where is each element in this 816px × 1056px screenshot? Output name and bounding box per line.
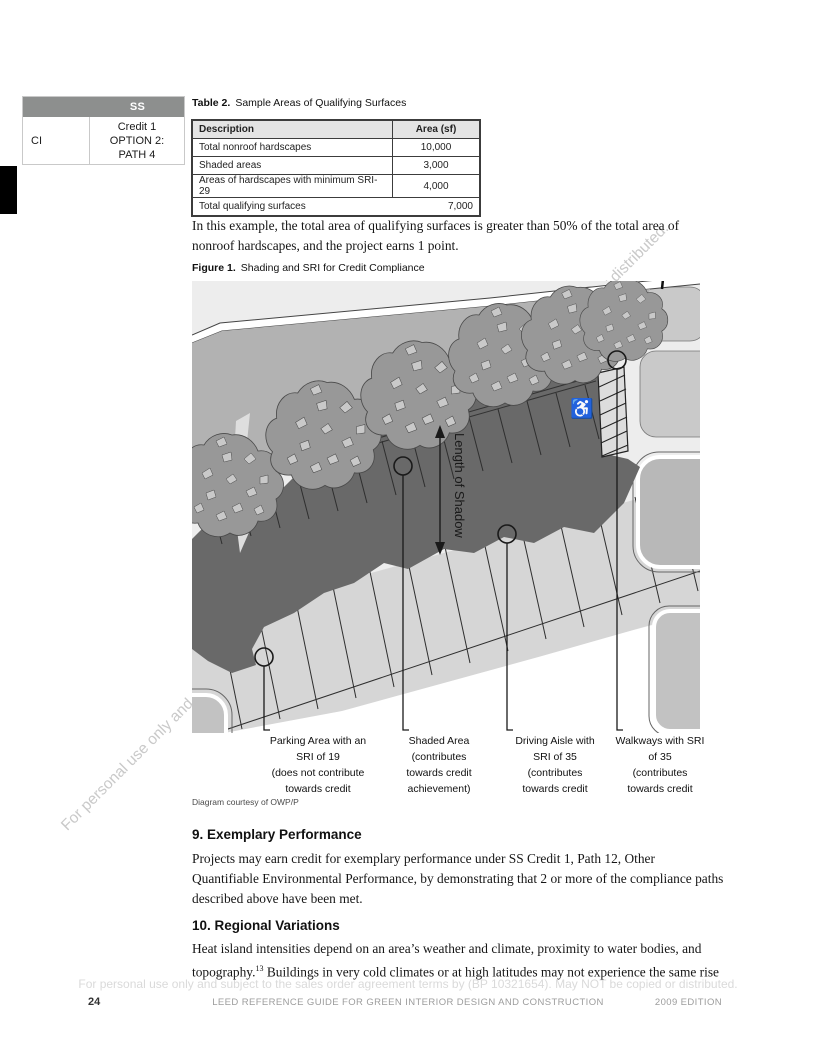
figure-callout-labels: Parking Area with an SRI of 19 (does not… bbox=[192, 733, 700, 795]
table2-caption-text: Sample Areas of Qualifying Surfaces bbox=[235, 97, 406, 109]
figure1-caption-label: Figure 1. bbox=[192, 262, 236, 274]
table2-caption-label: Table 2. bbox=[192, 97, 230, 109]
cell-description: Areas of hardscapes with minimum SRI-29 bbox=[193, 175, 393, 198]
table-row: Total nonroof hardscapes 10,000 bbox=[193, 139, 480, 157]
example-paragraph: In this example, the total area of quali… bbox=[192, 216, 724, 256]
footer-title: LEED REFERENCE GUIDE FOR GREEN INTERIOR … bbox=[98, 997, 718, 1008]
figure1-caption-text: Shading and SRI for Credit Compliance bbox=[241, 262, 425, 274]
table-row: Shaded areas 3,000 bbox=[193, 157, 480, 175]
footer-edition: 2009 EDITION bbox=[655, 997, 722, 1008]
cell-area: 10,000 bbox=[393, 139, 480, 157]
cell-area: 4,000 bbox=[393, 175, 480, 198]
page-edge-tab bbox=[0, 166, 17, 214]
parking-area-label: Parking Area with an SRI of 19 (does not… bbox=[258, 733, 378, 797]
driving-aisle-label: Driving Aisle with SRI of 35 (contribute… bbox=[495, 733, 615, 797]
table2: Description Area (sf) Total nonroof hard… bbox=[192, 120, 480, 216]
cell-description: Total nonroof hardscapes bbox=[193, 139, 393, 157]
cell-description: Shaded areas bbox=[193, 157, 393, 175]
rating-system-label: CI bbox=[23, 117, 90, 164]
table2-caption: Table 2.Sample Areas of Qualifying Surfa… bbox=[192, 97, 406, 109]
section10-body: Heat island intensities depend on an are… bbox=[192, 939, 724, 982]
road-tick bbox=[662, 281, 663, 289]
corner-island bbox=[192, 695, 226, 733]
footer-watermark: For personal use only and subject to the… bbox=[0, 977, 816, 991]
diagram-credit: Diagram courtesy of OWP/P bbox=[192, 797, 299, 807]
handicap-icon: ♿ bbox=[570, 397, 594, 420]
total-value: 7,000 bbox=[448, 201, 473, 212]
landscape-island bbox=[640, 351, 700, 437]
credit-category-badge: SS bbox=[23, 97, 184, 117]
walkways-label: Walkways with SRI of 35 (contributes tow… bbox=[600, 733, 720, 797]
section9-body: Projects may earn credit for exemplary p… bbox=[192, 849, 724, 909]
table-header-row: Description Area (sf) bbox=[193, 121, 480, 139]
col-description: Description bbox=[193, 121, 393, 139]
col-area: Area (sf) bbox=[393, 121, 480, 139]
total-label: Total qualifying surfaces bbox=[199, 201, 306, 212]
table-row: Areas of hardscapes with minimum SRI-29 … bbox=[193, 175, 480, 198]
right-island bbox=[638, 457, 700, 567]
site-plan-drawing: ♿ bbox=[192, 281, 700, 733]
cell-area: 3,000 bbox=[393, 157, 480, 175]
figure1-caption: Figure 1.Shading and SRI for Credit Comp… bbox=[192, 262, 425, 274]
section9-heading: 9. Exemplary Performance bbox=[192, 827, 362, 842]
length-of-shadow-label: Length of Shadow bbox=[452, 433, 467, 538]
shaded-area-label: Shaded Area (contributes towards credit … bbox=[379, 733, 499, 797]
bottom-right-island bbox=[654, 611, 700, 731]
credit-path-label: Credit 1 OPTION 2: PATH 4 bbox=[90, 117, 184, 164]
section10-heading: 10. Regional Variations bbox=[192, 918, 340, 933]
credit-sidebar: SS CI Credit 1 OPTION 2: PATH 4 bbox=[22, 96, 185, 165]
figure1-site-plan: ♿ bbox=[192, 281, 700, 795]
table-total-row: Total qualifying surfaces 7,000 bbox=[193, 198, 480, 216]
